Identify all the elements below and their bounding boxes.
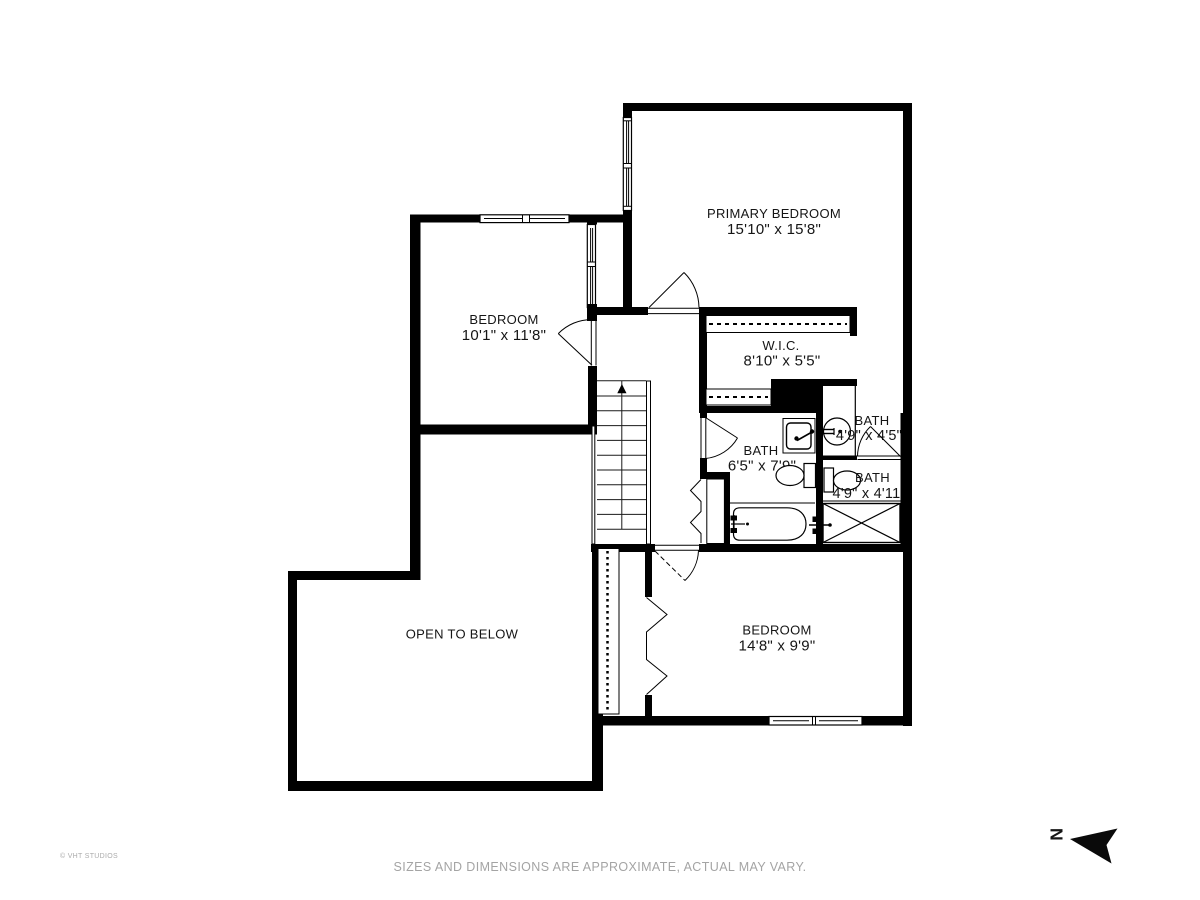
svg-text:N: N xyxy=(1047,828,1067,841)
svg-text:BEDROOM: BEDROOM xyxy=(469,312,538,327)
svg-text:BATH: BATH xyxy=(855,470,890,485)
svg-text:© VHT STUDIOS: © VHT STUDIOS xyxy=(60,852,118,860)
svg-text:8'10" x 5'5": 8'10" x 5'5" xyxy=(744,353,821,370)
svg-text:BATH: BATH xyxy=(744,443,779,458)
svg-text:4'9" x 4'5": 4'9" x 4'5" xyxy=(836,428,902,444)
svg-text:BEDROOM: BEDROOM xyxy=(742,623,811,638)
svg-text:SIZES AND DIMENSIONS ARE APPRO: SIZES AND DIMENSIONS ARE APPROXIMATE, AC… xyxy=(394,860,807,874)
svg-text:15'10" x 15'8": 15'10" x 15'8" xyxy=(727,221,821,238)
svg-text:14'8" x 9'9": 14'8" x 9'9" xyxy=(739,638,816,655)
svg-text:BATH: BATH xyxy=(855,413,890,428)
svg-text:4'9" x 4'11: 4'9" x 4'11 xyxy=(833,486,901,502)
svg-text:PRIMARY BEDROOM: PRIMARY BEDROOM xyxy=(707,206,841,221)
svg-text:OPEN TO BELOW: OPEN TO BELOW xyxy=(406,627,519,642)
svg-text:10'1" x 11'8": 10'1" x 11'8" xyxy=(462,327,546,344)
svg-text:W.I.C.: W.I.C. xyxy=(762,338,799,353)
